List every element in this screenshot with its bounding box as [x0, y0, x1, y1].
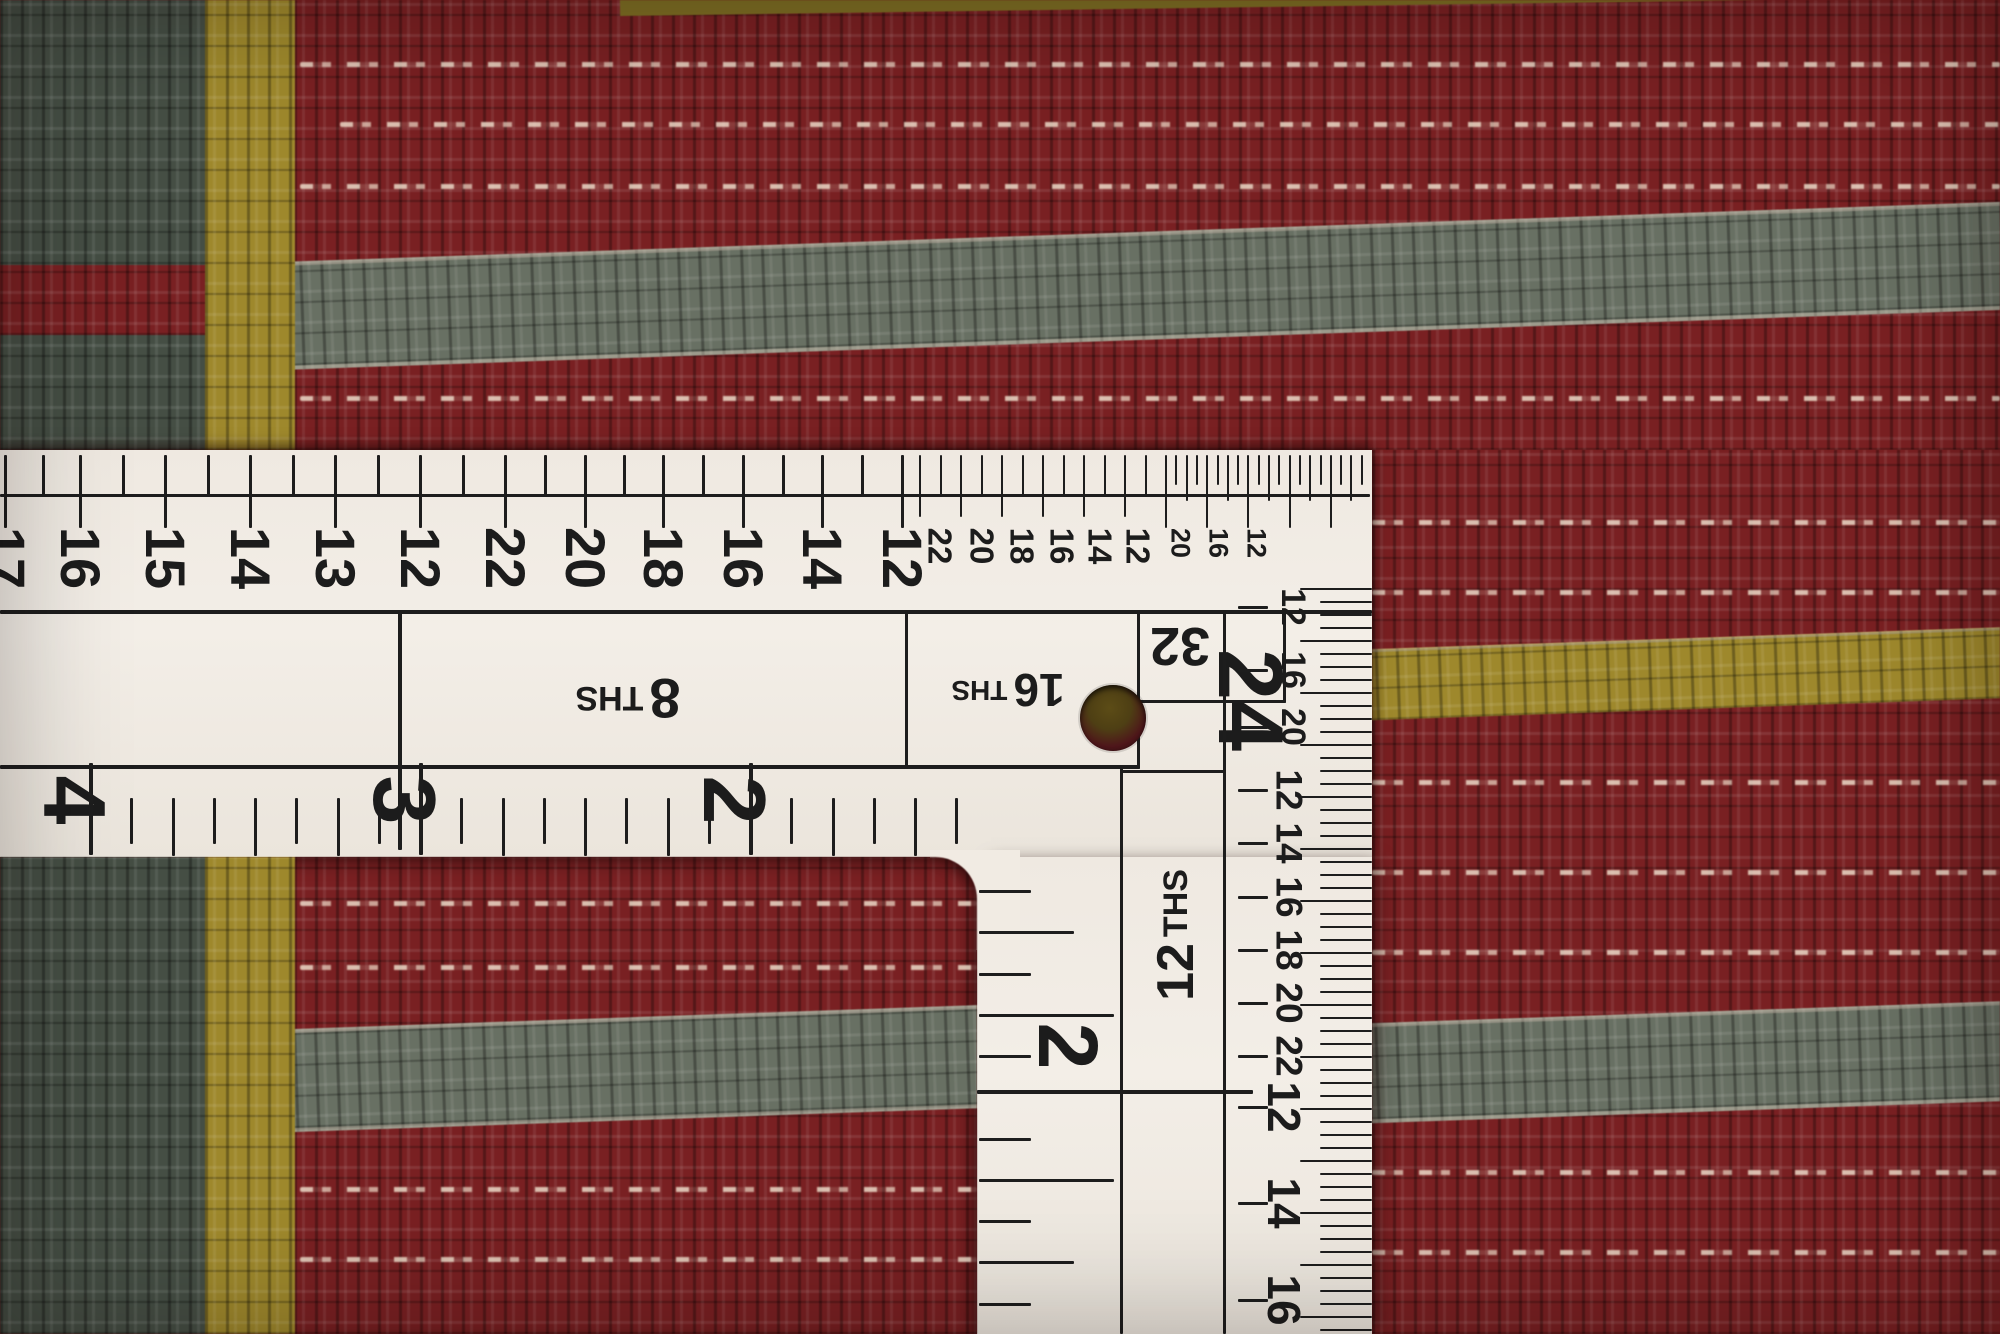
- weft-line: [300, 396, 2000, 401]
- rug-gray-band-top: [278, 199, 2000, 370]
- rug-olive-top-strip: [620, 0, 2000, 16]
- weft-line: [300, 965, 977, 970]
- rug-teal-column-bottom: [0, 857, 205, 1334]
- weft-line: [340, 122, 2000, 127]
- rug-teal-column: [0, 0, 205, 450]
- weft-line: [1372, 520, 2000, 525]
- ruler-horizontal-arm: [0, 450, 1372, 857]
- rug-gold-column-bottom: [205, 857, 295, 1334]
- rug-red-patch: [0, 265, 205, 335]
- weft-line: [1372, 1170, 2000, 1175]
- rug-lower-left-area: [0, 857, 977, 1334]
- weft-line: [1372, 950, 2000, 955]
- weft-line: [300, 901, 977, 906]
- ruler-vertical-arm: [977, 857, 1372, 1334]
- ruler-hanging-hole: [1080, 685, 1146, 751]
- weft-line: [300, 62, 2000, 67]
- photo-scene: 32 24 1716151413122220181614122220181614…: [0, 0, 2000, 1334]
- weft-line: [300, 184, 2000, 189]
- rug-upper-area: [0, 0, 2000, 450]
- weft-line: [1372, 590, 2000, 595]
- weft-line: [1372, 1250, 2000, 1255]
- rug-gold-band-right: [1372, 625, 2000, 723]
- weft-line: [300, 1187, 977, 1192]
- rug-right-area: [1372, 450, 2000, 1334]
- weft-line: [1372, 870, 2000, 875]
- weft-line: [300, 1257, 977, 1262]
- rug-gray-band-right: [1372, 999, 2000, 1126]
- weft-line: [1372, 780, 2000, 785]
- rug-gold-column: [205, 0, 295, 450]
